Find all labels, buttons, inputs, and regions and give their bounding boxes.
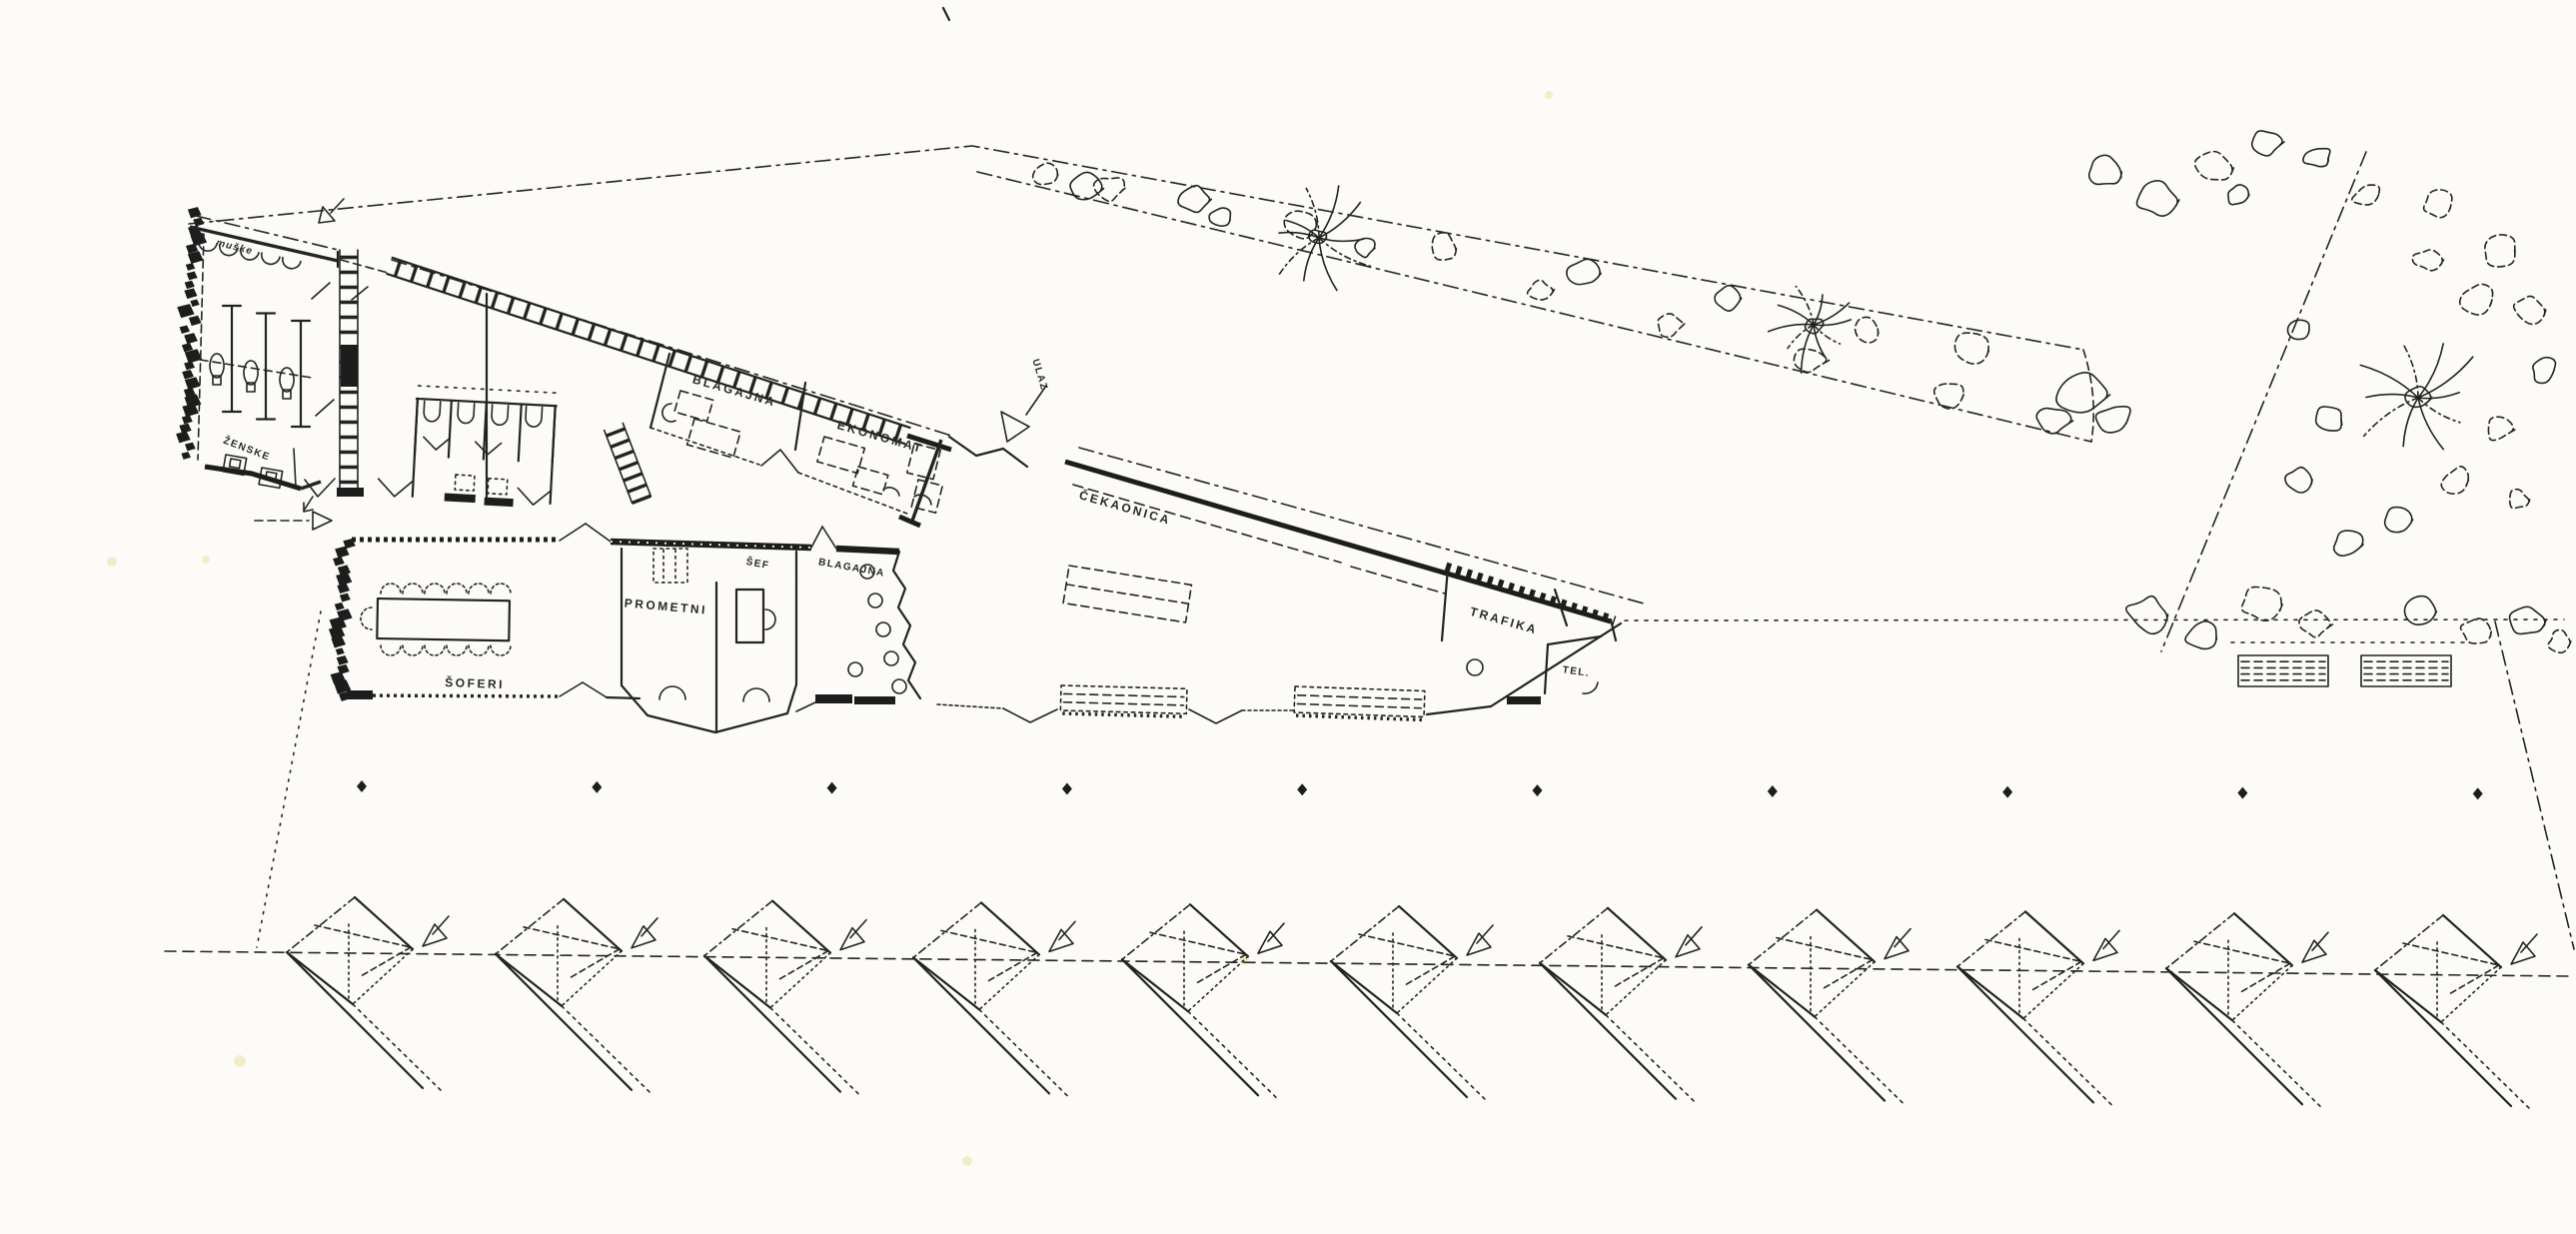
paper-specks bbox=[107, 91, 1553, 1166]
east-platform bbox=[1625, 152, 2574, 949]
room-label-sef: ŠEF bbox=[745, 555, 771, 572]
landscaping bbox=[1033, 131, 2571, 652]
room-labels: MUŠKE ŽENSKE BLAGAJNA EKONOMAT ULAZ ČEKA… bbox=[215, 238, 1591, 691]
room-label-prometni: PROMETNI bbox=[624, 596, 707, 617]
ticket-wing bbox=[387, 258, 951, 526]
room-label-blagajna-lower: BLAGAJNA bbox=[817, 557, 885, 580]
waiting-hall bbox=[937, 462, 1621, 723]
canopy-columns bbox=[357, 780, 2483, 799]
sanitary-block bbox=[378, 294, 558, 509]
room-label-soferi: ŠOFERI bbox=[445, 674, 505, 691]
room-label-tel: TEL. bbox=[1562, 664, 1591, 679]
staff-wing bbox=[329, 524, 920, 732]
bus-parking-stalls bbox=[165, 897, 2568, 1110]
west-service-block bbox=[176, 199, 388, 530]
room-label-trafika: TRAFIKA bbox=[1468, 605, 1539, 637]
floor-plan-svg: MUŠKE ŽENSKE BLAGAJNA EKONOMAT ULAZ ČEKA… bbox=[0, 0, 2576, 1234]
room-label-cekaonica: ČEKAONICA bbox=[1077, 487, 1173, 528]
entrance-area bbox=[949, 386, 1046, 467]
entrance-label-ulaz: ULAZ bbox=[1029, 358, 1049, 392]
floor-plan-page: MUŠKE ŽENSKE BLAGAJNA EKONOMAT ULAZ ČEKA… bbox=[0, 0, 2576, 1234]
